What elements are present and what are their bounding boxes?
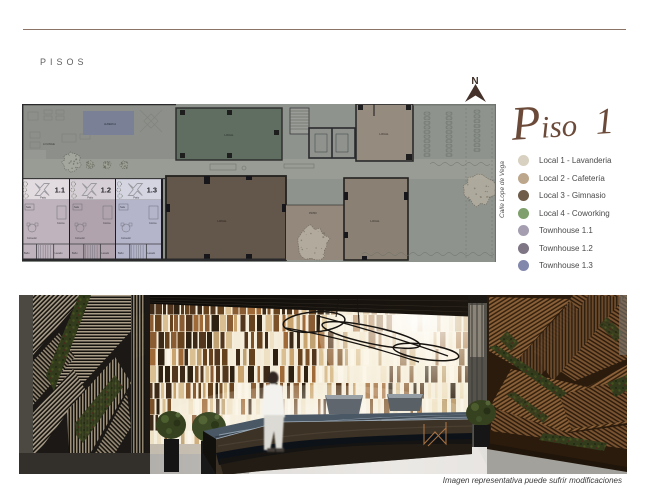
- svg-text:Cocina: Cocina: [149, 222, 157, 225]
- svg-text:Sala: Sala: [120, 206, 125, 209]
- svg-text:Sala: Sala: [74, 206, 79, 209]
- svg-text:Patio: Patio: [40, 196, 46, 200]
- svg-text:LOCAL: LOCAL: [370, 219, 380, 223]
- svg-text:Patio: Patio: [87, 196, 93, 200]
- svg-text:1.2: 1.2: [101, 186, 111, 195]
- svg-text:Baño: Baño: [24, 252, 30, 255]
- svg-text:Lavado: Lavado: [101, 252, 110, 255]
- svg-text:1.3: 1.3: [147, 186, 157, 195]
- svg-text:Baño: Baño: [118, 252, 124, 255]
- svg-text:Patio: Patio: [133, 196, 139, 200]
- svg-text:Sala: Sala: [26, 206, 31, 209]
- svg-text:1.1: 1.1: [55, 186, 65, 195]
- svg-text:LOCAL: LOCAL: [217, 219, 227, 223]
- svg-text:Lavado: Lavado: [147, 252, 156, 255]
- svg-text:ALBERCA: ALBERCA: [104, 122, 116, 126]
- svg-text:Cocina: Cocina: [57, 222, 65, 225]
- svg-text:Comedor: Comedor: [121, 237, 131, 240]
- svg-text:LOCAL: LOCAL: [224, 133, 234, 137]
- svg-text:Lavado: Lavado: [55, 252, 64, 255]
- svg-text:Cocina: Cocina: [103, 222, 111, 225]
- svg-text:Baño: Baño: [72, 252, 78, 255]
- svg-text:Calle Lope de Vega: Calle Lope de Vega: [499, 161, 506, 218]
- svg-text:LOUNGE: LOUNGE: [43, 142, 55, 146]
- svg-text:LOCAL: LOCAL: [379, 132, 389, 136]
- svg-text:Comedor: Comedor: [27, 237, 37, 240]
- svg-text:PATIO: PATIO: [309, 211, 316, 215]
- svg-text:Comedor: Comedor: [75, 237, 85, 240]
